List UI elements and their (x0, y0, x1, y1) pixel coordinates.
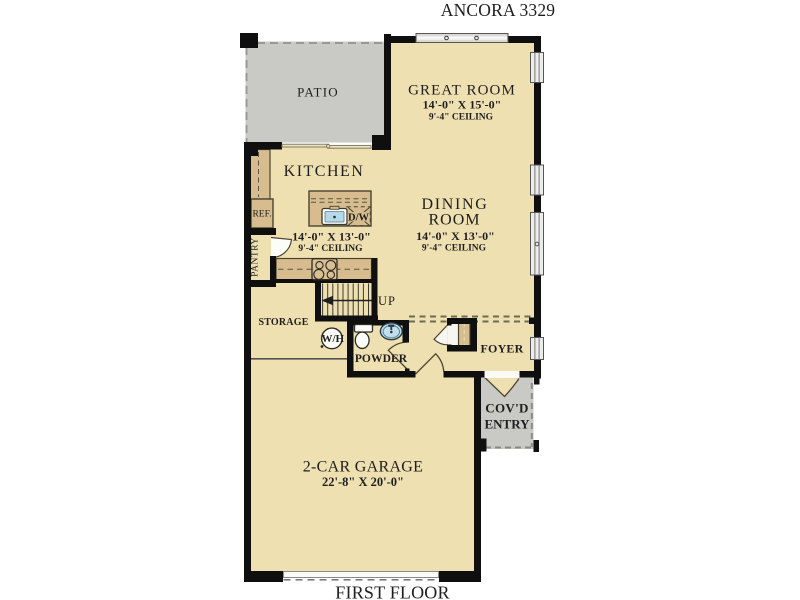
svg-text:PATIO: PATIO (297, 85, 339, 100)
svg-text:UP: UP (378, 294, 396, 308)
svg-text:ANCORA 3329: ANCORA 3329 (441, 0, 556, 20)
svg-text:POWDER: POWDER (355, 353, 408, 365)
svg-text:DINING: DINING (421, 196, 488, 213)
svg-text:REF.: REF. (252, 210, 271, 220)
svg-text:PANTRY: PANTRY (251, 237, 261, 277)
svg-text:KITCHEN: KITCHEN (284, 163, 365, 180)
svg-text:FOYER: FOYER (481, 342, 524, 356)
svg-text:14'-0" X 13'-0": 14'-0" X 13'-0" (416, 229, 495, 243)
svg-text:COV'D: COV'D (485, 401, 528, 416)
svg-text:ENTRY: ENTRY (484, 417, 530, 432)
svg-text:14'-0" X 15'-0": 14'-0" X 15'-0" (423, 98, 502, 112)
svg-text:GREAT ROOM: GREAT ROOM (408, 83, 516, 99)
svg-text:9'-4" CEILING: 9'-4" CEILING (429, 113, 494, 123)
svg-text:14'-0" X 13'-0": 14'-0" X 13'-0" (292, 229, 371, 243)
svg-text:ROOM: ROOM (428, 212, 480, 229)
svg-text:FIRST FLOOR: FIRST FLOOR (335, 583, 449, 600)
svg-text:STORAGE: STORAGE (258, 317, 308, 328)
svg-text:W/H: W/H (321, 333, 344, 345)
svg-text:9'-4" CEILING: 9'-4" CEILING (298, 244, 363, 254)
svg-text:9'-4" CEILING: 9'-4" CEILING (422, 244, 487, 254)
svg-text:D/W: D/W (348, 213, 370, 224)
svg-text:22'-8" X 20'-0": 22'-8" X 20'-0" (322, 475, 404, 489)
svg-text:2-CAR GARAGE: 2-CAR GARAGE (303, 459, 424, 476)
